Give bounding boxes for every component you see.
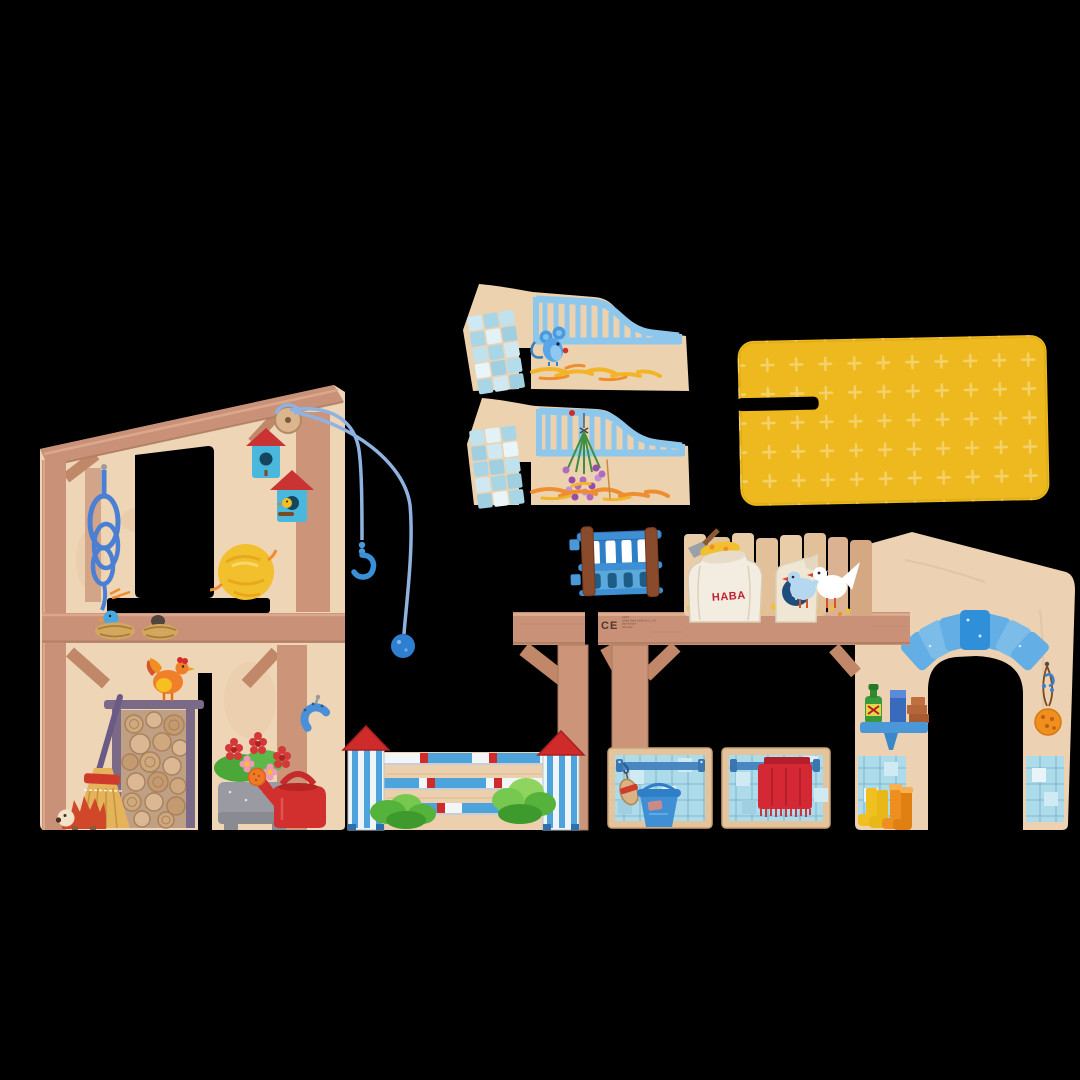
- stall-wall-left: [608, 748, 712, 828]
- gate-ramp-top-piece: [463, 284, 689, 395]
- pulley-ball-icon: [391, 634, 415, 658]
- stall-wall-right: [722, 748, 830, 828]
- roof-slot: [737, 397, 819, 412]
- red-dot: [569, 410, 575, 416]
- hay-manger-piece: [569, 524, 663, 599]
- product-photo: HABA: [0, 0, 1080, 1080]
- pulley-hook-icon: [354, 542, 374, 577]
- towel-icon: [758, 757, 812, 817]
- ce-mark: CE: [601, 620, 618, 632]
- tile-ramp-2: [469, 425, 525, 509]
- svg-text:Germany: Germany: [622, 625, 633, 629]
- wall-tiles-right: [1026, 756, 1064, 822]
- sack-brand-label: HABA: [712, 590, 747, 604]
- stable-arch-section: [855, 532, 1075, 830]
- rubber-boots-icon: [858, 784, 913, 830]
- fence-rail-1: [383, 753, 545, 765]
- door-slot: [198, 673, 212, 830]
- floor-slot: [107, 598, 270, 613]
- keystone: [960, 610, 990, 650]
- playset-illustration: HABA: [0, 0, 1080, 1080]
- roof-panel-piece: [735, 335, 1049, 506]
- window-opening: [135, 446, 214, 598]
- gate-ramp-bottom-piece: [467, 398, 690, 509]
- barn-wall-piece: [40, 385, 345, 830]
- doorway-arch-opening: [928, 656, 1023, 830]
- jump-fence-piece: [343, 726, 584, 830]
